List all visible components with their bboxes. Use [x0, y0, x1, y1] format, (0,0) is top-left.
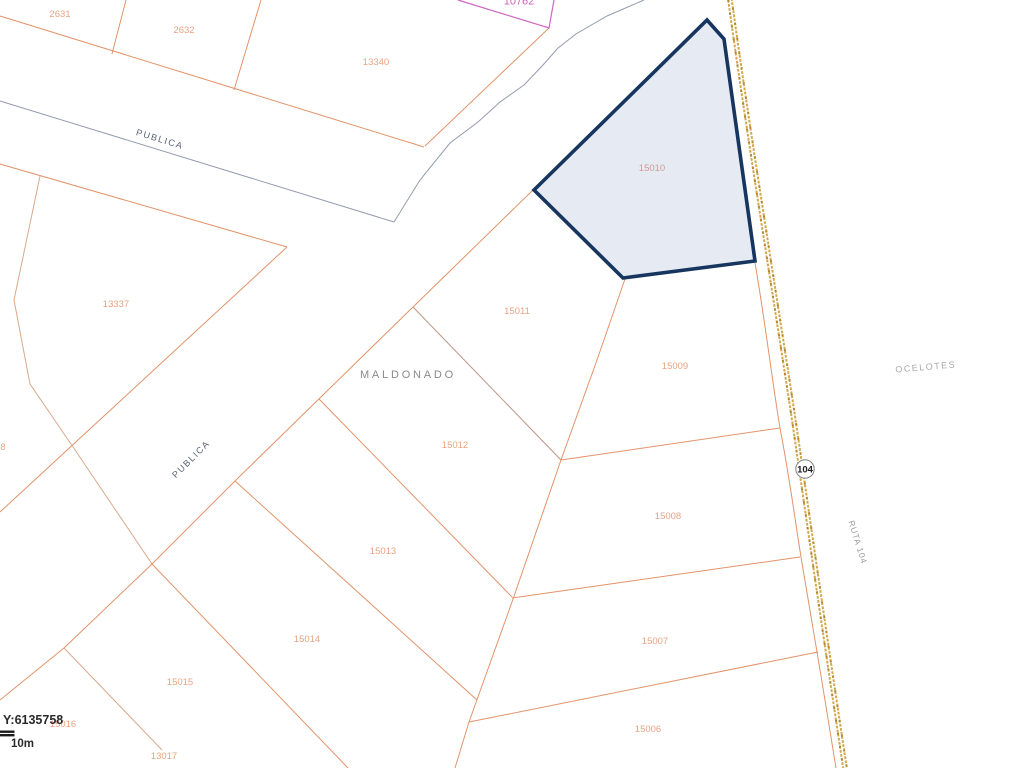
svg-text:8: 8 [0, 442, 5, 453]
svg-text:15015: 15015 [167, 677, 193, 688]
svg-text:15012: 15012 [442, 440, 468, 451]
svg-text:15013: 15013 [370, 546, 396, 557]
svg-text:15009: 15009 [662, 361, 688, 372]
svg-text:15011: 15011 [504, 306, 530, 317]
svg-text:13340: 13340 [363, 57, 389, 68]
svg-text:15014: 15014 [294, 634, 320, 645]
svg-text:MALDONADO: MALDONADO [360, 369, 456, 381]
svg-text:2631: 2631 [49, 9, 70, 20]
svg-text:15008: 15008 [655, 511, 681, 522]
svg-text:15006: 15006 [635, 724, 661, 735]
svg-text:15007: 15007 [642, 636, 668, 647]
svg-text:13017: 13017 [151, 751, 177, 762]
svg-text:2632: 2632 [173, 25, 194, 36]
svg-text:13337: 13337 [103, 299, 129, 310]
svg-text:Y:6135758: Y:6135758 [3, 713, 63, 727]
svg-text:104: 104 [797, 465, 814, 476]
svg-text:10762: 10762 [504, 0, 535, 8]
svg-text:10m: 10m [11, 738, 34, 750]
svg-text:15010: 15010 [639, 163, 665, 174]
